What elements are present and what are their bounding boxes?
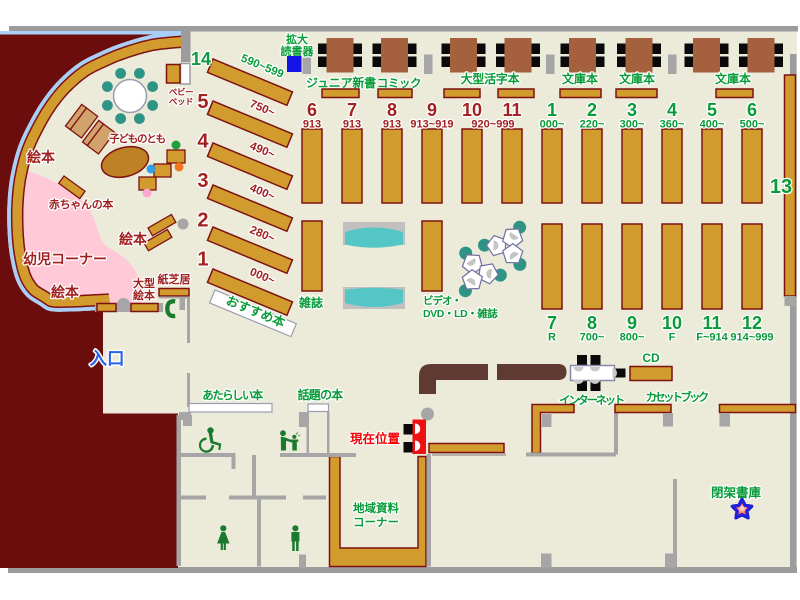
svg-text:R: R xyxy=(548,332,556,344)
svg-text:紙芝居: 紙芝居 xyxy=(158,272,191,286)
svg-text:子どものとも: 子どものとも xyxy=(109,132,165,145)
svg-text:800~: 800~ xyxy=(620,332,645,344)
svg-text:1: 1 xyxy=(547,100,557,120)
svg-text:コミック: コミック xyxy=(377,77,421,90)
svg-text:360~: 360~ xyxy=(660,119,685,131)
svg-text:913: 913 xyxy=(383,119,401,131)
svg-text:ベッド: ベッド xyxy=(169,97,193,107)
svg-text:9: 9 xyxy=(427,100,437,120)
svg-text:300~: 300~ xyxy=(620,119,645,131)
svg-text:914~999: 914~999 xyxy=(730,332,773,344)
svg-text:F: F xyxy=(669,332,676,344)
svg-text:絵本: 絵本 xyxy=(119,231,148,247)
svg-text:F~914: F~914 xyxy=(696,332,728,344)
svg-text:文庫本: 文庫本 xyxy=(562,71,598,86)
svg-text:6: 6 xyxy=(307,100,317,120)
svg-text:500~: 500~ xyxy=(740,119,765,131)
svg-text:絵本: 絵本 xyxy=(133,288,155,302)
svg-text:文庫本: 文庫本 xyxy=(715,71,751,86)
svg-text:3: 3 xyxy=(197,170,208,192)
svg-text:入口: 入口 xyxy=(90,349,125,369)
svg-text:7: 7 xyxy=(547,313,557,333)
svg-text:7: 7 xyxy=(347,100,357,120)
svg-text:現在位置: 現在位置 xyxy=(350,431,401,446)
svg-text:700~: 700~ xyxy=(580,332,605,344)
svg-text:913~919: 913~919 xyxy=(410,119,453,131)
svg-text:雑誌: 雑誌 xyxy=(298,295,323,310)
svg-text:拡大: 拡大 xyxy=(286,32,308,46)
svg-text:913: 913 xyxy=(343,119,361,131)
svg-text:絵本: 絵本 xyxy=(27,149,56,165)
svg-text:10: 10 xyxy=(462,100,482,120)
svg-text:閉架書庫: 閉架書庫 xyxy=(711,485,762,500)
svg-text:読書器: 読書器 xyxy=(281,44,315,58)
svg-text:大型活字本: 大型活字本 xyxy=(460,71,519,86)
svg-text:ビデオ・: ビデオ・ xyxy=(423,294,461,307)
svg-text:5: 5 xyxy=(197,91,208,113)
svg-text:2: 2 xyxy=(197,210,208,232)
svg-text:文庫本: 文庫本 xyxy=(619,71,655,86)
svg-text:ジュニア新書: ジュニア新書 xyxy=(306,75,376,90)
svg-text:9: 9 xyxy=(627,313,637,333)
svg-text:000~: 000~ xyxy=(540,119,565,131)
svg-text:幼児コーナー: 幼児コーナー xyxy=(23,251,107,267)
svg-text:カセットブック: カセットブック xyxy=(646,390,709,404)
svg-text:話題の本: 話題の本 xyxy=(298,387,344,402)
svg-text:11: 11 xyxy=(502,100,521,120)
svg-text:11: 11 xyxy=(702,313,721,333)
svg-text:コーナー: コーナー xyxy=(353,516,399,529)
svg-text:ベビー: ベビー xyxy=(169,87,193,97)
svg-text:CD: CD xyxy=(642,351,660,365)
svg-text:14: 14 xyxy=(191,49,211,69)
svg-text:地域資料: 地域資料 xyxy=(353,501,399,515)
svg-text:絵本: 絵本 xyxy=(51,284,80,300)
svg-text:400~: 400~ xyxy=(700,119,725,131)
svg-text:2: 2 xyxy=(587,100,597,120)
svg-text:赤ちゃんの本: 赤ちゃんの本 xyxy=(49,197,113,211)
svg-text:920~999: 920~999 xyxy=(471,119,514,131)
svg-text:220~: 220~ xyxy=(580,119,605,131)
svg-text:あたらしい本: あたらしい本 xyxy=(202,388,263,402)
svg-text:10: 10 xyxy=(662,313,682,333)
svg-text:8: 8 xyxy=(587,313,597,333)
svg-text:大型: 大型 xyxy=(133,276,155,290)
svg-text:4: 4 xyxy=(667,100,677,120)
svg-text:5: 5 xyxy=(707,100,717,120)
svg-text:6: 6 xyxy=(747,100,757,120)
svg-text:13: 13 xyxy=(770,176,792,198)
svg-text:DVD・LD・雑誌: DVD・LD・雑誌 xyxy=(423,307,498,320)
svg-text:4: 4 xyxy=(197,131,209,153)
svg-text:1: 1 xyxy=(197,249,208,271)
svg-text:8: 8 xyxy=(387,100,397,120)
svg-text:3: 3 xyxy=(627,100,637,120)
svg-text:913: 913 xyxy=(303,119,321,131)
svg-text:12: 12 xyxy=(742,313,762,333)
